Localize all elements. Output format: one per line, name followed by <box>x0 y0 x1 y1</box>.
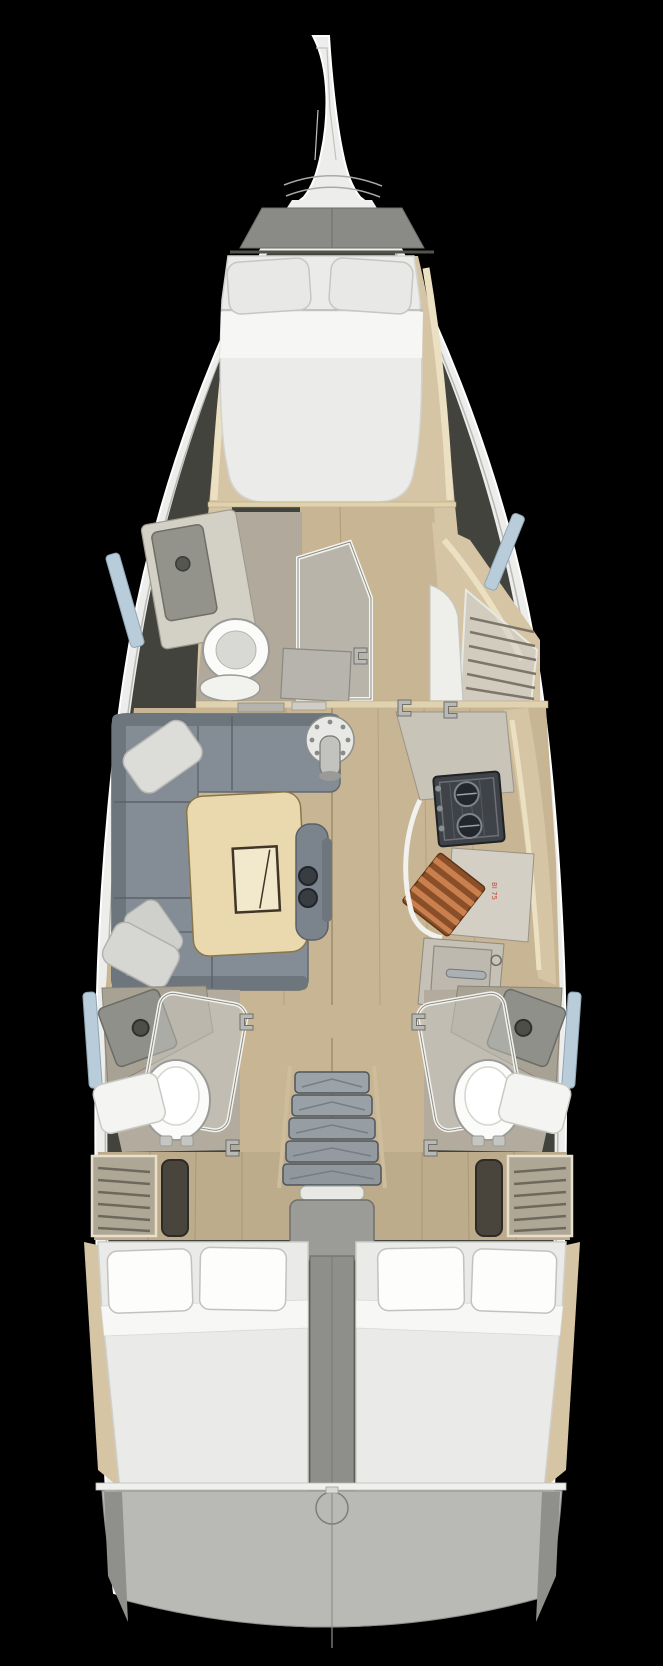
cupholder <box>299 867 317 885</box>
toilet-lid <box>200 675 260 701</box>
pillow <box>107 1249 193 1314</box>
table-folding-leaf[interactable] <box>233 846 280 912</box>
companionway <box>279 1066 385 1200</box>
companionway-threshold <box>300 1186 364 1200</box>
floorplan-canvas: BI 75 <box>0 0 663 1666</box>
cabinet-knob[interactable] <box>491 955 502 966</box>
aft-head-port <box>83 986 253 1152</box>
galley-stamp-label: BI 75 <box>490 882 498 900</box>
transom <box>96 1483 566 1648</box>
transom-latch <box>326 1487 338 1493</box>
vent-locker-starboard[interactable] <box>508 1156 572 1236</box>
bulkhead-shelf-item <box>292 702 326 710</box>
locker-recess-starboard <box>476 1160 502 1236</box>
pillow <box>471 1249 557 1314</box>
aft-cabin-port-bed <box>98 1242 308 1490</box>
salon-table[interactable] <box>186 791 308 957</box>
forward-bulkhead-trim <box>208 502 456 507</box>
v-berth-sheet <box>220 312 423 358</box>
vent-locker-port[interactable] <box>92 1156 156 1236</box>
aft-head-starboard <box>412 986 581 1152</box>
locker-recess-port <box>162 1160 188 1236</box>
bulkhead-shelf-item <box>238 703 284 712</box>
pillow <box>377 1247 464 1310</box>
galley-stove[interactable] <box>433 771 505 846</box>
bow-deck <box>230 176 434 252</box>
pillow <box>328 257 413 315</box>
sofa-backrest <box>116 714 340 726</box>
forward-head-door-open[interactable] <box>281 648 352 701</box>
pillow <box>226 257 311 315</box>
table-bench-seat[interactable] <box>296 824 332 940</box>
aft-cabin-starboard-bed <box>356 1242 566 1490</box>
cupholder <box>299 889 317 907</box>
yacht-floorplan: BI 75 <box>0 0 663 1666</box>
pillow <box>199 1247 286 1310</box>
forward-head-toilet <box>200 619 269 701</box>
companionway-stairs[interactable] <box>283 1072 381 1185</box>
stern-interior <box>84 1200 580 1492</box>
